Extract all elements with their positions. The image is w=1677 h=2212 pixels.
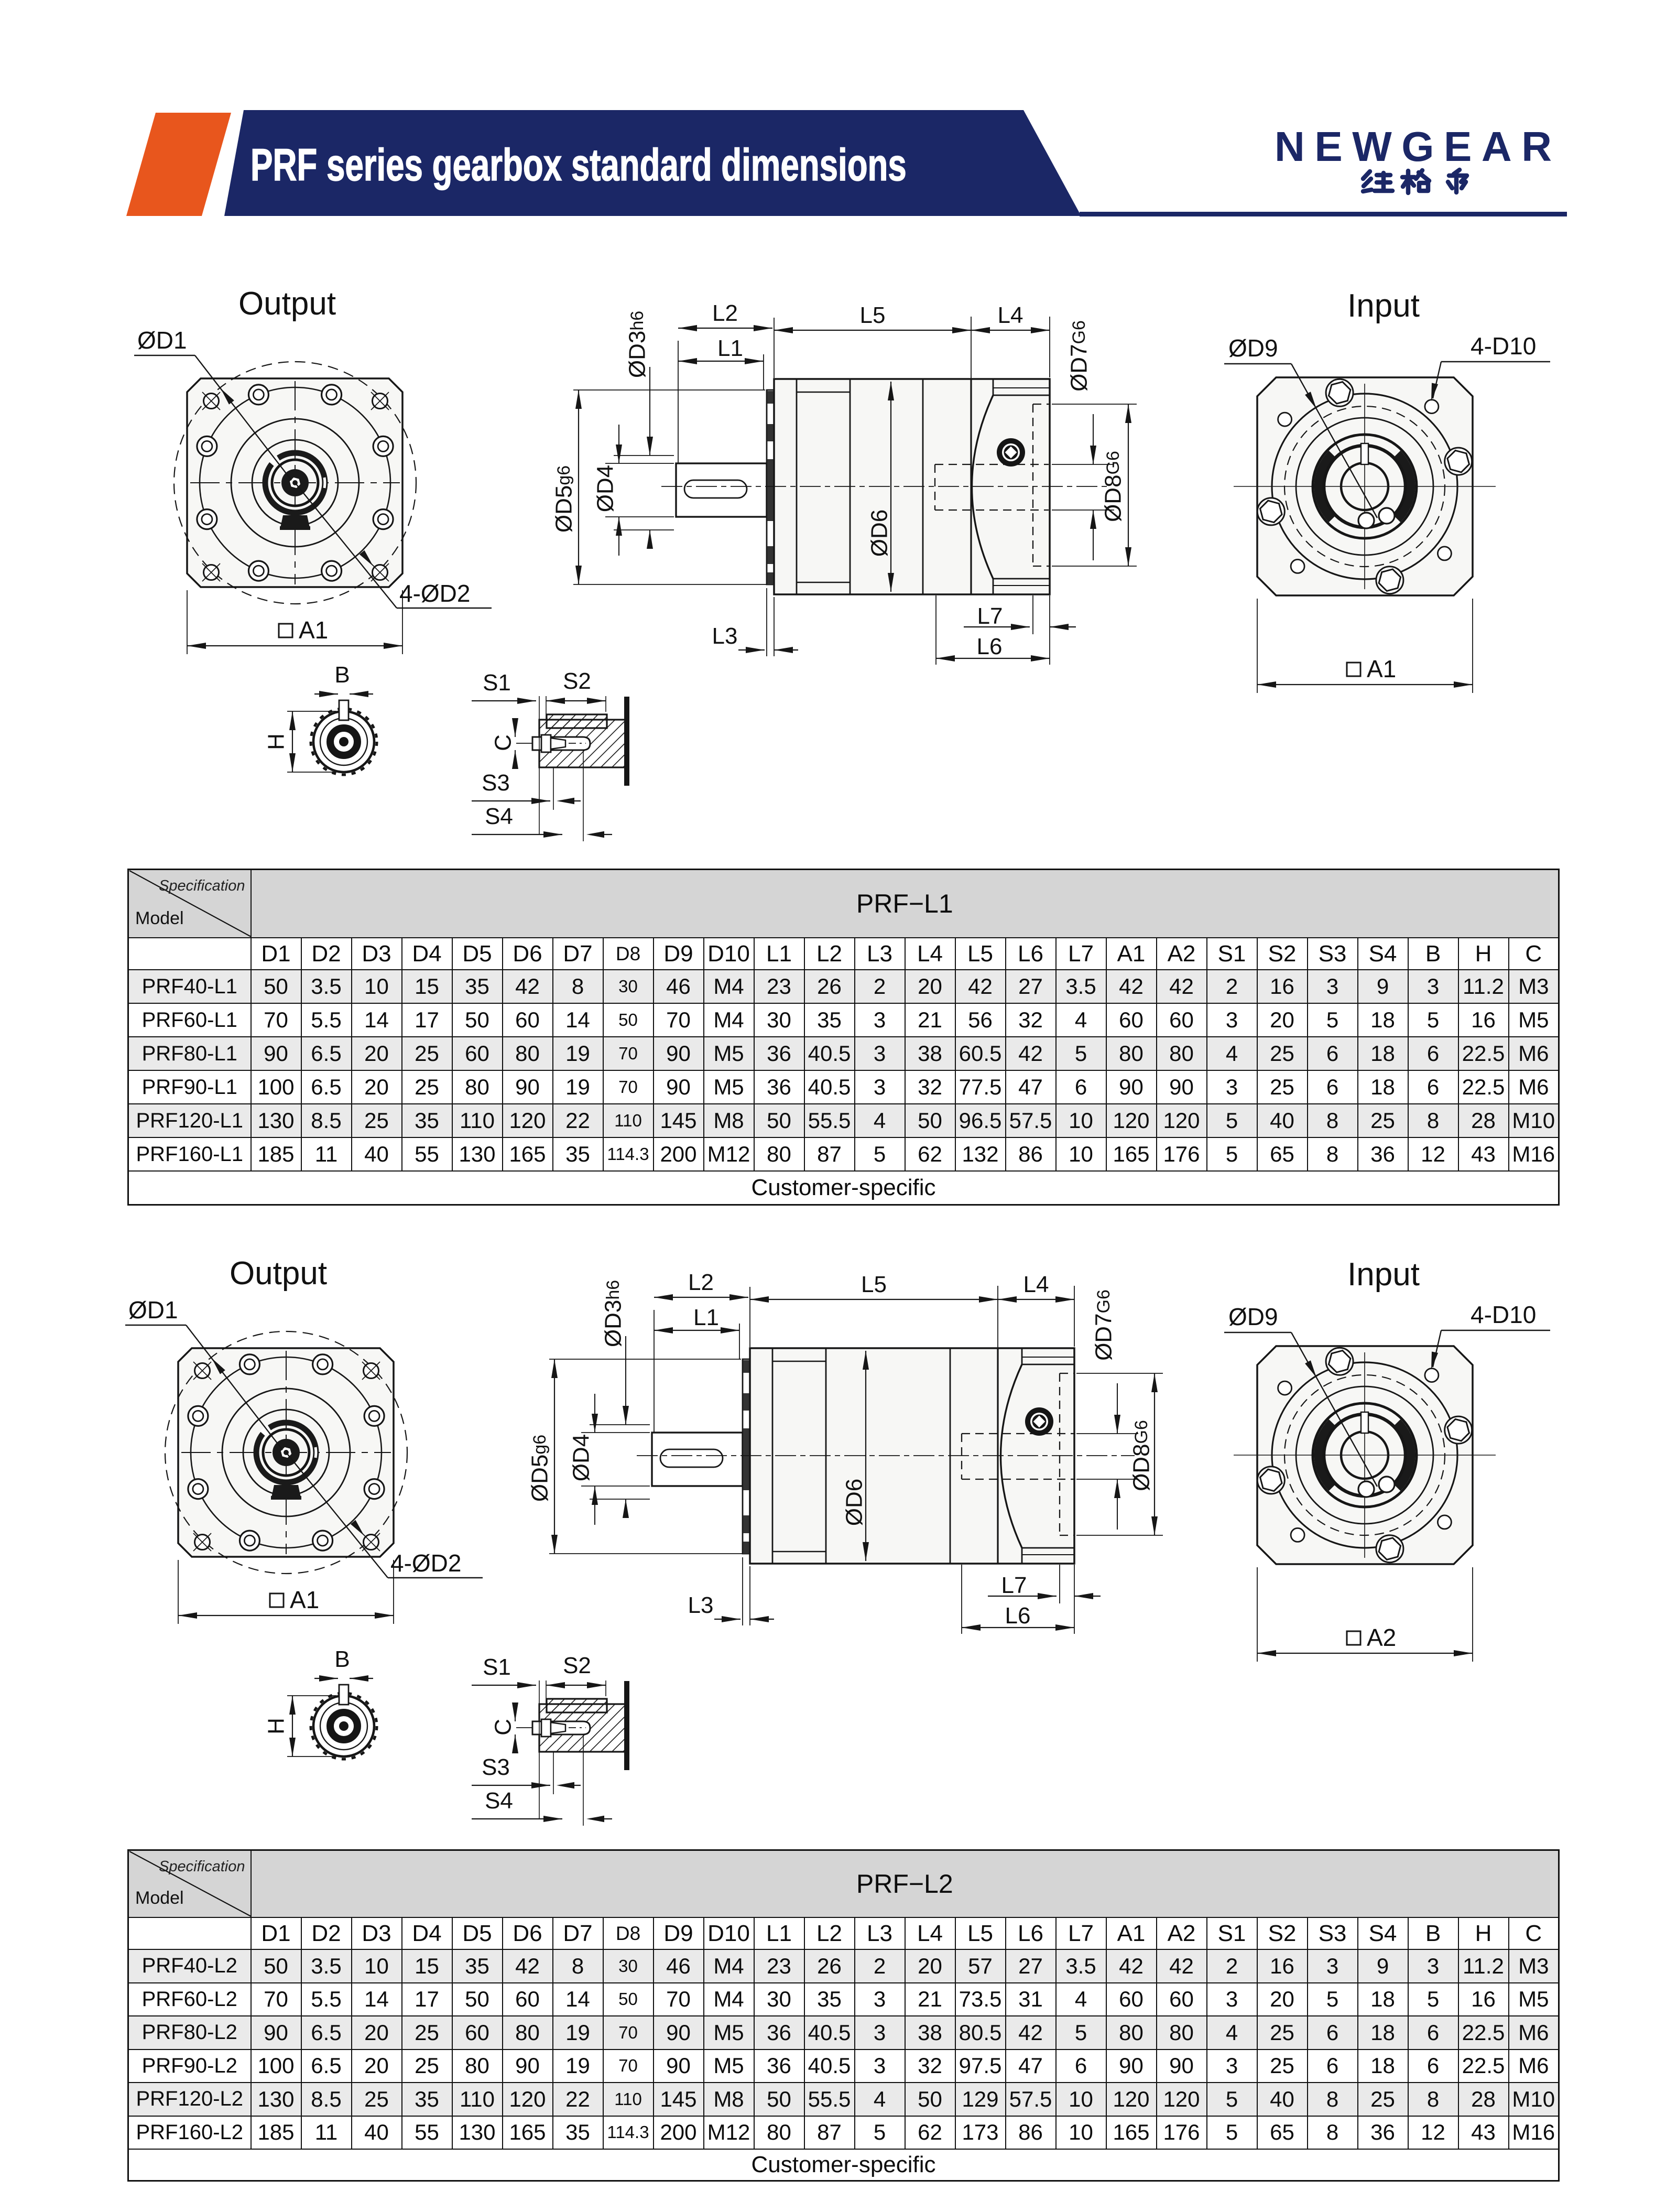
svg-text:L2: L2 [688,1270,714,1295]
svg-text:ØD6: ØD6 [842,1479,867,1526]
svg-text:L7: L7 [977,603,1003,629]
svg-text:C: C [491,734,516,751]
svg-text:ØD3h6: ØD3h6 [601,1280,626,1347]
svg-text:ØD4: ØD4 [569,1434,594,1481]
svg-text:ØD9: ØD9 [1228,334,1278,362]
svg-text:S2: S2 [563,668,591,694]
svg-text:PRF series gearbox standard di: PRF series gearbox standard dimensions [251,140,907,190]
svg-text:Input: Input [1347,288,1420,324]
svg-text:S4: S4 [485,804,513,829]
svg-text:L5: L5 [860,302,886,328]
svg-text:ØD1: ØD1 [137,327,187,354]
svg-text:L4: L4 [998,302,1023,328]
svg-text:B: B [334,662,350,688]
svg-text:A1: A1 [1367,655,1396,682]
svg-text:S3: S3 [482,770,510,796]
svg-text:L7: L7 [1001,1573,1027,1598]
svg-text:ØD3h6: ØD3h6 [625,311,650,378]
svg-text:A1: A1 [299,616,328,644]
svg-text:L2: L2 [712,300,738,326]
svg-text:L1: L1 [717,335,743,361]
svg-text:L6: L6 [977,634,1003,659]
svg-text:ØD4: ØD4 [593,465,618,512]
svg-text:L6: L6 [1005,1603,1031,1629]
svg-text:ØD7G6: ØD7G6 [1066,320,1092,392]
svg-text:L3: L3 [688,1592,714,1618]
svg-text:ØD5g6: ØD5g6 [551,465,577,533]
svg-text:NEWGEAR: NEWGEAR [1275,123,1562,170]
svg-text:Output: Output [238,286,336,322]
svg-text:ØD6: ØD6 [867,509,892,557]
svg-text:L5: L5 [861,1272,887,1297]
svg-text:L4: L4 [1023,1272,1049,1297]
svg-text:ØD5g6: ØD5g6 [527,1435,553,1502]
svg-text:ØD7G6: ØD7G6 [1091,1289,1117,1361]
svg-text:L3: L3 [712,623,738,649]
svg-text:4-ØD2: 4-ØD2 [399,580,470,607]
svg-text:S1: S1 [483,670,511,696]
svg-text:L1: L1 [693,1305,719,1330]
svg-text:H: H [264,733,289,750]
svg-text:A2: A2 [1367,1624,1396,1651]
svg-text:4-D10: 4-D10 [1471,332,1536,360]
